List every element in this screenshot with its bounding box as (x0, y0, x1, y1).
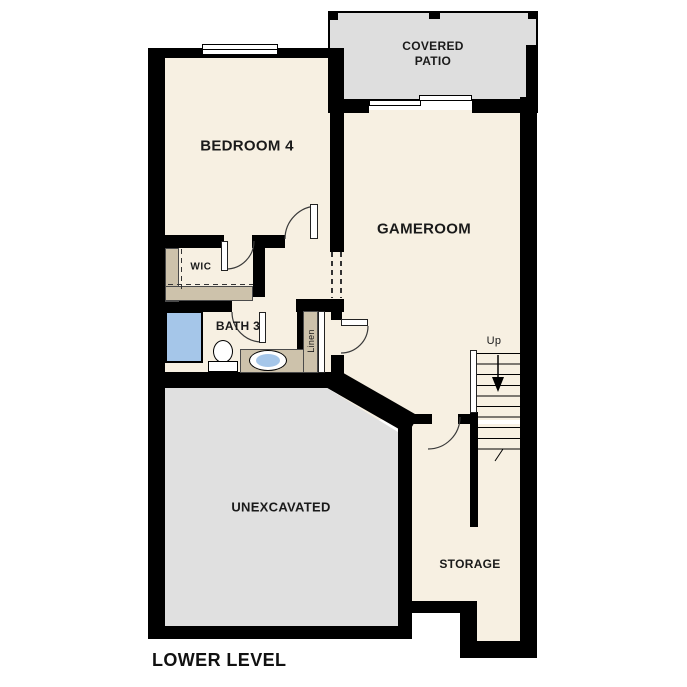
stairs-up-label: Up (487, 335, 502, 347)
wall (472, 100, 538, 113)
cased-opening-dash (331, 252, 333, 298)
wall (253, 235, 265, 297)
stair-rail (470, 350, 477, 413)
floor-plan-lower-level: COVERED PATIO BEDROOM 4 GAMEROOM WIC BAT… (0, 0, 687, 687)
wall (398, 424, 412, 628)
patio-sliding-door-icon (369, 100, 421, 106)
wall (148, 372, 344, 388)
toilet-tank-icon (208, 361, 238, 372)
stair-treads (477, 353, 520, 459)
bedroom-door-leaf (310, 204, 318, 239)
sink-basin-icon (256, 354, 280, 367)
wall (148, 626, 412, 639)
wic-door-leaf (221, 241, 228, 271)
bath3-label: BATH 3 (216, 319, 260, 333)
covered-patio-label: COVERED PATIO (390, 39, 476, 69)
patio-post (528, 11, 538, 19)
page-title: LOWER LEVEL (152, 650, 286, 671)
wic-shelf (165, 286, 253, 301)
gameroom-label: GAMEROOM (377, 221, 471, 238)
wall (148, 48, 165, 638)
patio-sliding-door-icon (419, 95, 472, 101)
toilet-icon (213, 340, 233, 363)
patio-post (429, 11, 440, 19)
storage-label: STORAGE (439, 557, 500, 571)
wall (526, 45, 538, 102)
linen-label: Linen (306, 329, 316, 353)
wall (328, 100, 369, 113)
unexcavated-label: UNEXCAVATED (231, 500, 330, 515)
shower-icon (165, 311, 203, 363)
linen-door-leaf (318, 311, 325, 373)
patio-post (328, 11, 338, 20)
cased-opening-dash (340, 252, 342, 298)
wic-rod-dash (168, 284, 253, 285)
wall (520, 97, 537, 658)
storage-floor-lower (477, 603, 520, 641)
wic-label: WIC (190, 262, 211, 273)
gameroom-door-leaf (341, 319, 368, 326)
wall (330, 48, 344, 252)
wall (148, 235, 224, 248)
wall (400, 414, 432, 424)
bedroom4-label: BEDROOM 4 (200, 138, 294, 155)
bedroom-window-icon (202, 44, 278, 55)
wall (460, 601, 477, 644)
wall (331, 355, 344, 373)
wic-rod-dash (181, 249, 182, 289)
